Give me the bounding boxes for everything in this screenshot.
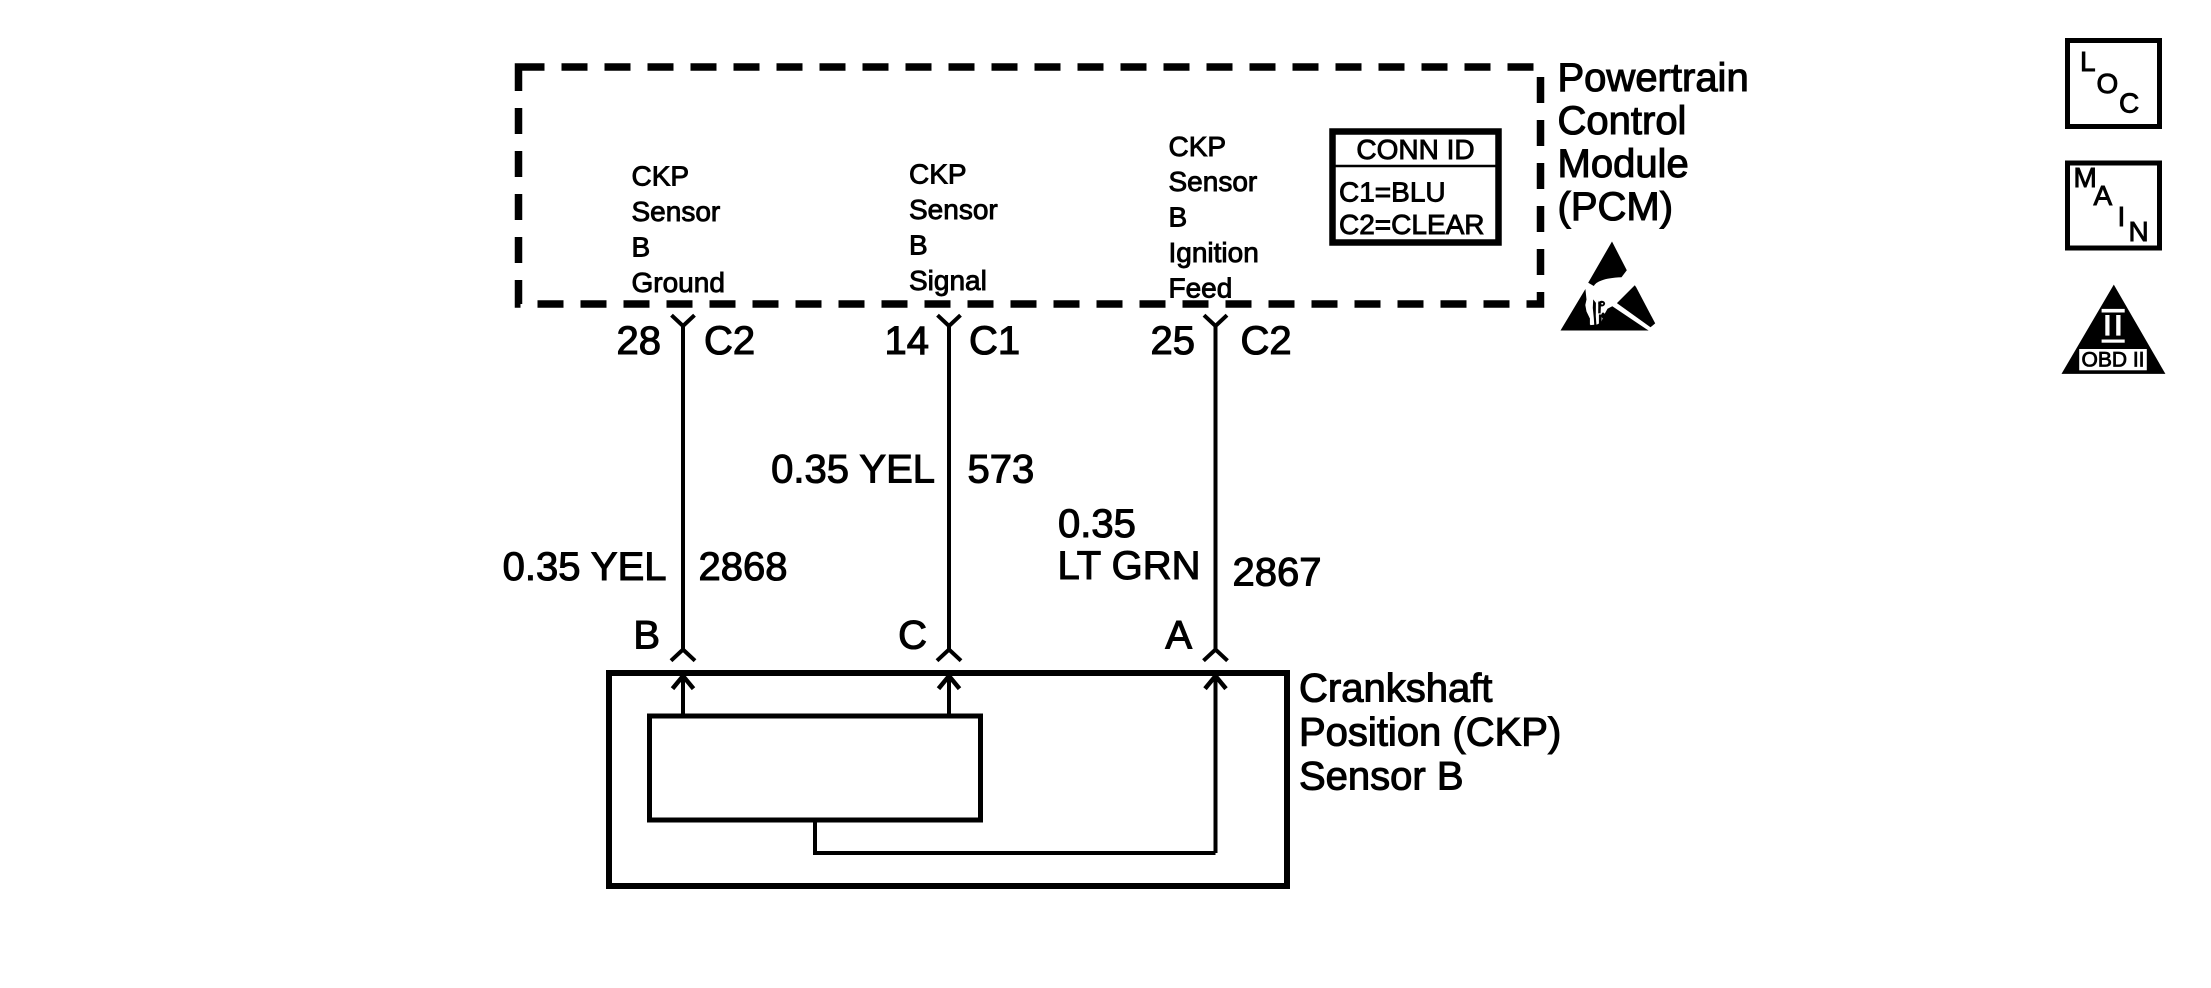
svg-text:O: O xyxy=(2097,68,2119,99)
svg-text:(PCM): (PCM) xyxy=(1558,185,1674,229)
svg-text:N: N xyxy=(2129,216,2149,247)
svg-text:Ground: Ground xyxy=(632,267,725,298)
svg-text:Position (CKP): Position (CKP) xyxy=(1299,711,1561,755)
svg-text:Signal: Signal xyxy=(909,265,987,296)
svg-text:C1=BLU: C1=BLU xyxy=(1339,176,1446,207)
svg-text:CKP: CKP xyxy=(632,161,690,192)
svg-text:C1: C1 xyxy=(969,319,1020,363)
svg-text:L: L xyxy=(2080,46,2096,77)
svg-text:573: 573 xyxy=(968,448,1035,492)
svg-text:C2=CLEAR: C2=CLEAR xyxy=(1339,209,1485,240)
svg-text:Ignition: Ignition xyxy=(1169,237,1259,268)
svg-text:2867: 2867 xyxy=(1233,550,1322,594)
svg-text:0.35 YEL: 0.35 YEL xyxy=(503,545,667,589)
svg-text:Sensor: Sensor xyxy=(909,194,998,225)
svg-text:B: B xyxy=(632,232,651,263)
svg-text:B: B xyxy=(909,229,928,260)
svg-text:A: A xyxy=(2094,180,2113,211)
svg-text:B: B xyxy=(633,614,660,658)
svg-text:2868: 2868 xyxy=(699,545,788,589)
svg-text:Module: Module xyxy=(1558,142,1689,186)
svg-text:0.35 YEL: 0.35 YEL xyxy=(771,448,935,492)
svg-text:C: C xyxy=(898,614,927,658)
svg-text:C: C xyxy=(2119,87,2139,118)
svg-text:C2: C2 xyxy=(704,319,755,363)
svg-text:Feed: Feed xyxy=(1169,272,1233,303)
svg-text:OBD II: OBD II xyxy=(2081,349,2144,372)
svg-text:25: 25 xyxy=(1151,319,1196,363)
svg-text:C2: C2 xyxy=(1241,319,1292,363)
svg-text:Sensor: Sensor xyxy=(632,196,721,227)
svg-text:Sensor B: Sensor B xyxy=(1299,755,1464,799)
svg-text:Powertrain: Powertrain xyxy=(1558,56,1749,100)
svg-text:I: I xyxy=(2118,201,2126,232)
svg-text:CONN ID: CONN ID xyxy=(1356,134,1474,165)
svg-text:Sensor: Sensor xyxy=(1169,166,1258,197)
svg-text:28: 28 xyxy=(617,319,662,363)
svg-text:Control: Control xyxy=(1558,99,1687,143)
svg-text:A: A xyxy=(1165,614,1192,658)
svg-text:Crankshaft: Crankshaft xyxy=(1299,667,1492,711)
svg-text:B: B xyxy=(1169,202,1188,233)
svg-text:LT GRN: LT GRN xyxy=(1058,544,1201,588)
svg-text:14: 14 xyxy=(885,319,930,363)
svg-text:CKP: CKP xyxy=(909,159,967,190)
svg-text:0.35: 0.35 xyxy=(1058,502,1136,546)
svg-text:CKP: CKP xyxy=(1169,131,1227,162)
